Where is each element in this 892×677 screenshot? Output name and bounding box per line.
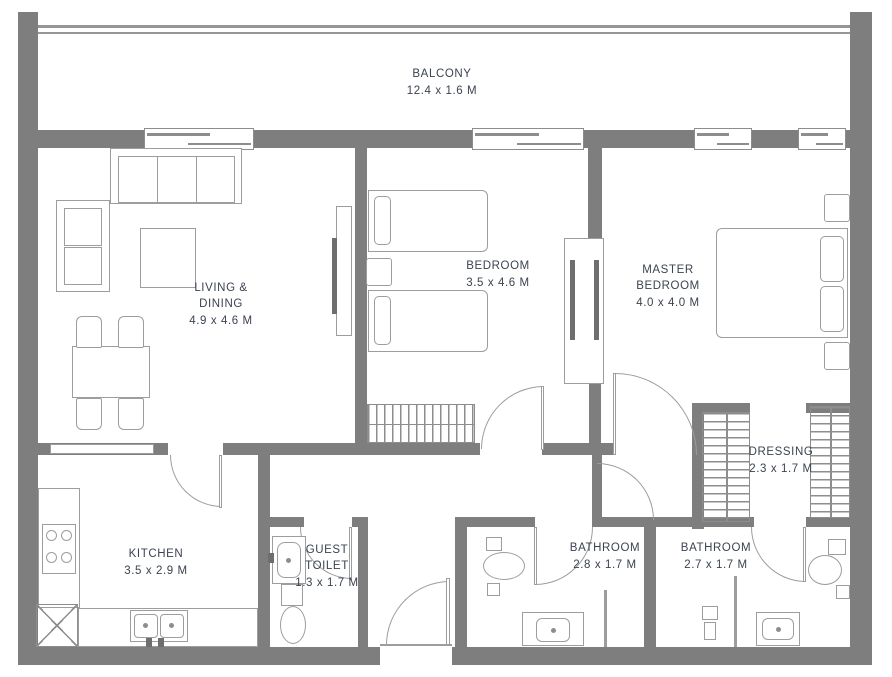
nightstand (824, 342, 850, 370)
kitchen-pass-through (50, 444, 154, 454)
sofa-seat (118, 156, 235, 203)
toilet-cistern (486, 537, 502, 551)
room-dims: 2.3 x 1.7 M (726, 461, 836, 477)
room-label-guest-toilet: GUEST TOILET 1.3 x 1.7 M (277, 542, 377, 591)
wardrobe-bedroom (367, 404, 475, 443)
wall-bedroom-master-upper (588, 148, 602, 238)
room-label-master-bedroom: MASTER BEDROOM 4.0 x 4.0 M (608, 262, 728, 311)
toilet-bowl (280, 606, 306, 644)
hall-door-arc (597, 463, 654, 520)
tv-living (332, 238, 337, 314)
shower-column (702, 606, 718, 620)
bathroom2-door-leaf (803, 527, 806, 582)
armchair-cushion (64, 247, 102, 285)
toilet-bowl (483, 552, 525, 580)
sliding-door-master-1 (694, 128, 752, 150)
wall-hall-top (542, 443, 614, 455)
room-label-bathroom-1: BATHROOM 2.8 x 1.7 M (545, 540, 665, 573)
burner (61, 530, 72, 541)
sliding-door-bedroom (472, 128, 584, 150)
drain-dot (143, 623, 148, 628)
shower-partition (604, 590, 607, 647)
entrance-door-leaf (446, 578, 450, 645)
room-name: LIVING & DINING (161, 280, 281, 312)
room-name: KITCHEN (80, 546, 232, 562)
room-label-balcony: BALCONY 12.4 x 1.6 M (382, 66, 502, 99)
dining-chair (118, 398, 144, 430)
wall-exterior-right (850, 12, 872, 665)
room-name: MASTER BEDROOM (608, 262, 728, 294)
wall-guest-toilet-top-a (270, 517, 304, 527)
tv-bedroom (570, 260, 575, 340)
burner (46, 530, 57, 541)
master-door-arc (615, 373, 697, 455)
bidet-spray (836, 585, 850, 599)
room-label-living-dining: LIVING & DINING 4.9 x 4.6 M (161, 280, 281, 329)
pillow (820, 286, 844, 332)
dining-chair (76, 398, 102, 430)
dining-chair (118, 316, 144, 348)
wall-dressing-bottom-b (806, 517, 852, 527)
room-name: DRESSING (726, 444, 836, 460)
balcony-railing (38, 25, 850, 28)
wall-living-bedroom (355, 130, 367, 455)
wall-bathroom1-top-a (467, 517, 535, 527)
room-name: BEDROOM (433, 258, 563, 274)
wall-bedroom-bottom (355, 443, 480, 455)
room-dims: 12.4 x 1.6 M (382, 83, 502, 99)
room-dims: 4.0 x 4.0 M (608, 295, 728, 311)
room-name: BALCONY (382, 66, 502, 82)
kitchen-door-arc (170, 455, 222, 507)
nightstand (366, 258, 392, 286)
room-dims: 4.9 x 4.6 M (161, 313, 281, 329)
wall-bathroom1-bathroom2 (644, 517, 656, 647)
sofa-cushion-line (157, 156, 158, 203)
faucet (268, 553, 274, 563)
bathroom1-door-leaf (534, 527, 537, 585)
floor-plan: BALCONY 12.4 x 1.6 M LIVING & DINING 4.9… (0, 0, 892, 677)
toilet-bowl (808, 555, 842, 585)
dining-chair (76, 316, 102, 348)
pillow (374, 296, 391, 345)
wall-bathroom1-left (455, 517, 467, 647)
room-name: BATHROOM (545, 540, 665, 556)
faucet (158, 638, 164, 647)
faucet (146, 638, 152, 647)
drain-dot (551, 628, 556, 633)
room-dims: 2.8 x 1.7 M (545, 557, 665, 573)
kitchen-door-leaf (219, 455, 222, 508)
wall-kitchen-right (258, 445, 270, 649)
burner (61, 552, 72, 563)
room-dims: 3.5 x 2.9 M (80, 563, 232, 579)
toilet-cistern (828, 539, 846, 555)
wall-exterior-left (18, 12, 38, 665)
entrance-opening (380, 645, 452, 665)
sliding-door-master-2 (798, 128, 846, 150)
balcony-railing-inner (38, 32, 850, 34)
shower-column (704, 622, 716, 640)
service-shaft (36, 604, 78, 647)
room-dims: 3.5 x 4.6 M (433, 275, 563, 291)
bedroom-door-leaf (541, 386, 544, 450)
room-dims: 2.7 x 1.7 M (656, 557, 776, 573)
room-label-bedroom: BEDROOM 3.5 x 4.6 M (433, 258, 563, 291)
room-label-kitchen: KITCHEN 3.5 x 2.9 M (80, 546, 232, 579)
wall-living-kitchen-b (223, 443, 355, 455)
room-label-bathroom-2: BATHROOM 2.7 x 1.7 M (656, 540, 776, 573)
drain-dot (169, 623, 174, 628)
dining-table (72, 346, 150, 398)
bedroom-door-arc (481, 386, 544, 449)
sofa-cushion-line (196, 156, 197, 203)
tv-console-living (336, 206, 352, 336)
pillow (820, 236, 844, 282)
room-dims: 1.3 x 1.7 M (277, 575, 377, 591)
entrance-door-arc (386, 581, 450, 645)
room-label-dressing: DRESSING 2.3 x 1.7 M (726, 444, 836, 477)
shower-partition (734, 576, 737, 647)
bidet-spray (487, 583, 500, 596)
drain-dot (776, 627, 781, 632)
tv-master (594, 260, 599, 340)
armchair-cushion (64, 208, 102, 246)
burner (46, 552, 57, 563)
master-door-leaf (613, 373, 616, 455)
room-name: BATHROOM (656, 540, 776, 556)
room-name: GUEST TOILET (277, 542, 377, 574)
coffee-table (140, 228, 196, 288)
sliding-door-living (144, 128, 254, 150)
pillow (374, 196, 391, 245)
nightstand (824, 194, 850, 222)
